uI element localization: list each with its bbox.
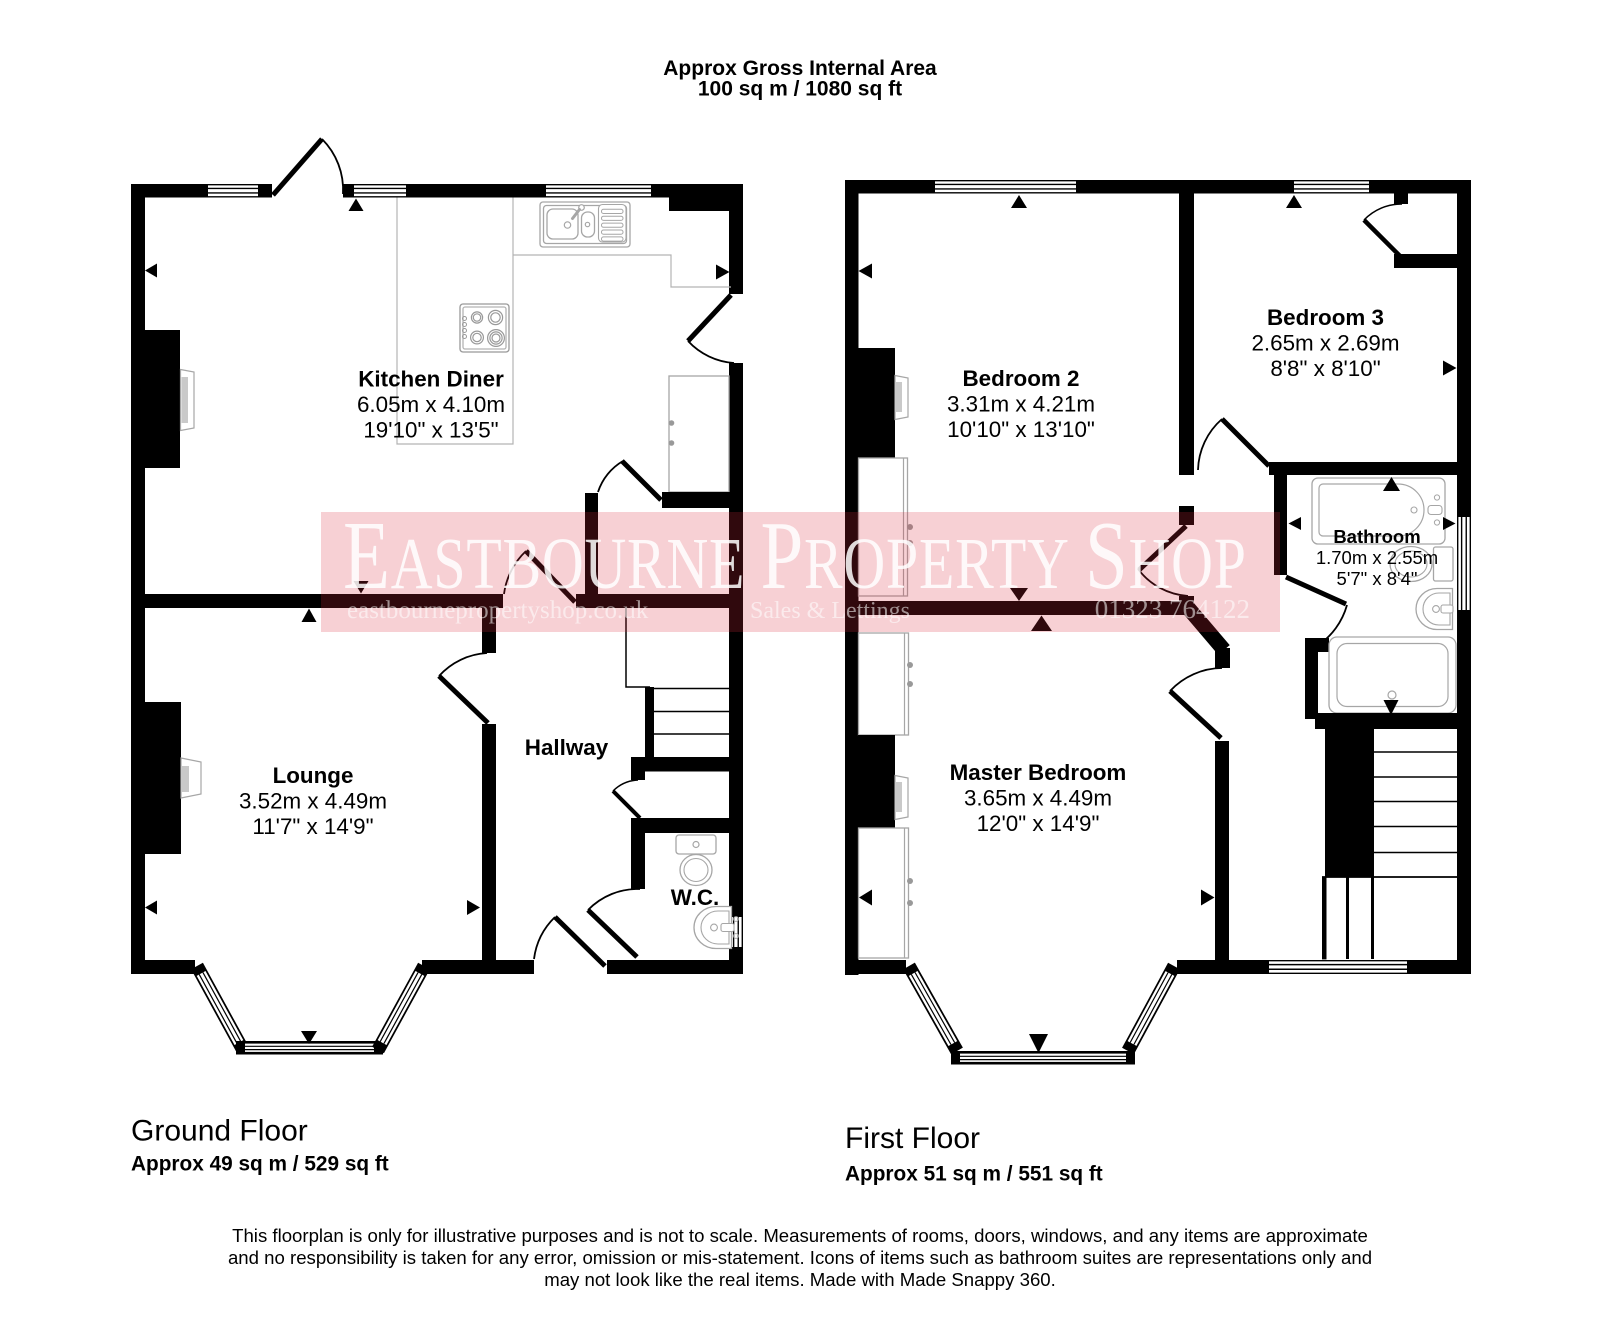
svg-text:W.C.: W.C. [671,885,720,910]
svg-text:may not look like the real ite: may not look like the real items. Made w… [544,1269,1056,1290]
svg-text:Sales & Lettings: Sales & Lettings [750,598,910,624]
svg-text:Hallway: Hallway [525,735,609,760]
svg-text:This floorplan is only for ill: This floorplan is only for illustrative … [232,1225,1368,1246]
svg-text:Lounge: Lounge [273,763,354,788]
svg-text:3.65m x 4.49m: 3.65m x 4.49m [964,785,1112,810]
svg-text:3.31m x 4.21m: 3.31m x 4.21m [947,391,1095,416]
svg-text:Ground Floor: Ground Floor [131,1115,308,1148]
svg-text:6.05m x 4.10m: 6.05m x 4.10m [357,392,505,417]
svg-text:11'7" x 14'9": 11'7" x 14'9" [252,814,373,839]
svg-text:2.65m x 2.69m: 2.65m x 2.69m [1251,330,1399,355]
svg-text:3.52m x 4.49m: 3.52m x 4.49m [239,788,387,813]
svg-text:Kitchen Diner: Kitchen Diner [358,367,504,392]
svg-text:01323 764122: 01323 764122 [1095,594,1250,624]
svg-text:eastbournepropertyshop.co.uk: eastbournepropertyshop.co.uk [347,597,649,624]
svg-text:10'10" x 13'10": 10'10" x 13'10" [947,417,1095,442]
svg-text:8'8" x 8'10": 8'8" x 8'10" [1270,356,1380,381]
svg-text:Bathroom: Bathroom [1333,526,1420,547]
svg-text:12'0" x 14'9": 12'0" x 14'9" [977,811,1100,836]
svg-text:Bedroom 3: Bedroom 3 [1267,305,1384,330]
svg-text:5'7" x 8'4": 5'7" x 8'4" [1337,568,1418,589]
svg-text:Approx 51 sq m / 551 sq ft: Approx 51 sq m / 551 sq ft [845,1163,1103,1186]
svg-text:and no responsibility is taken: and no responsibility is taken for any e… [228,1247,1372,1268]
svg-text:Approx 49 sq m / 529 sq ft: Approx 49 sq m / 529 sq ft [131,1153,389,1176]
svg-text:19'10" x 13'5": 19'10" x 13'5" [363,418,498,443]
svg-text:100 sq m / 1080 sq ft: 100 sq m / 1080 sq ft [698,78,902,101]
svg-text:Bedroom 2: Bedroom 2 [963,366,1080,391]
svg-text:1.70m x 2.55m: 1.70m x 2.55m [1316,547,1438,568]
svg-text:First Floor: First Floor [845,1122,980,1155]
svg-text:Master Bedroom: Master Bedroom [950,760,1127,785]
